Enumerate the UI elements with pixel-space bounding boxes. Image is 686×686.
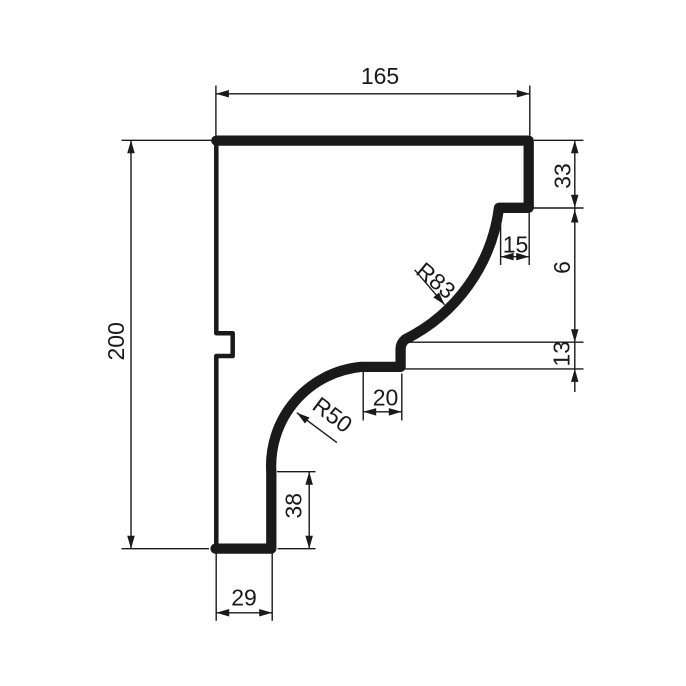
- svg-text:6: 6: [549, 261, 575, 274]
- svg-text:29: 29: [231, 585, 257, 611]
- svg-text:200: 200: [103, 322, 129, 360]
- svg-text:165: 165: [361, 63, 399, 89]
- svg-text:20: 20: [373, 384, 399, 410]
- svg-text:13: 13: [548, 341, 574, 367]
- svg-text:38: 38: [280, 493, 306, 519]
- svg-text:33: 33: [549, 163, 575, 189]
- svg-text:15: 15: [503, 231, 529, 257]
